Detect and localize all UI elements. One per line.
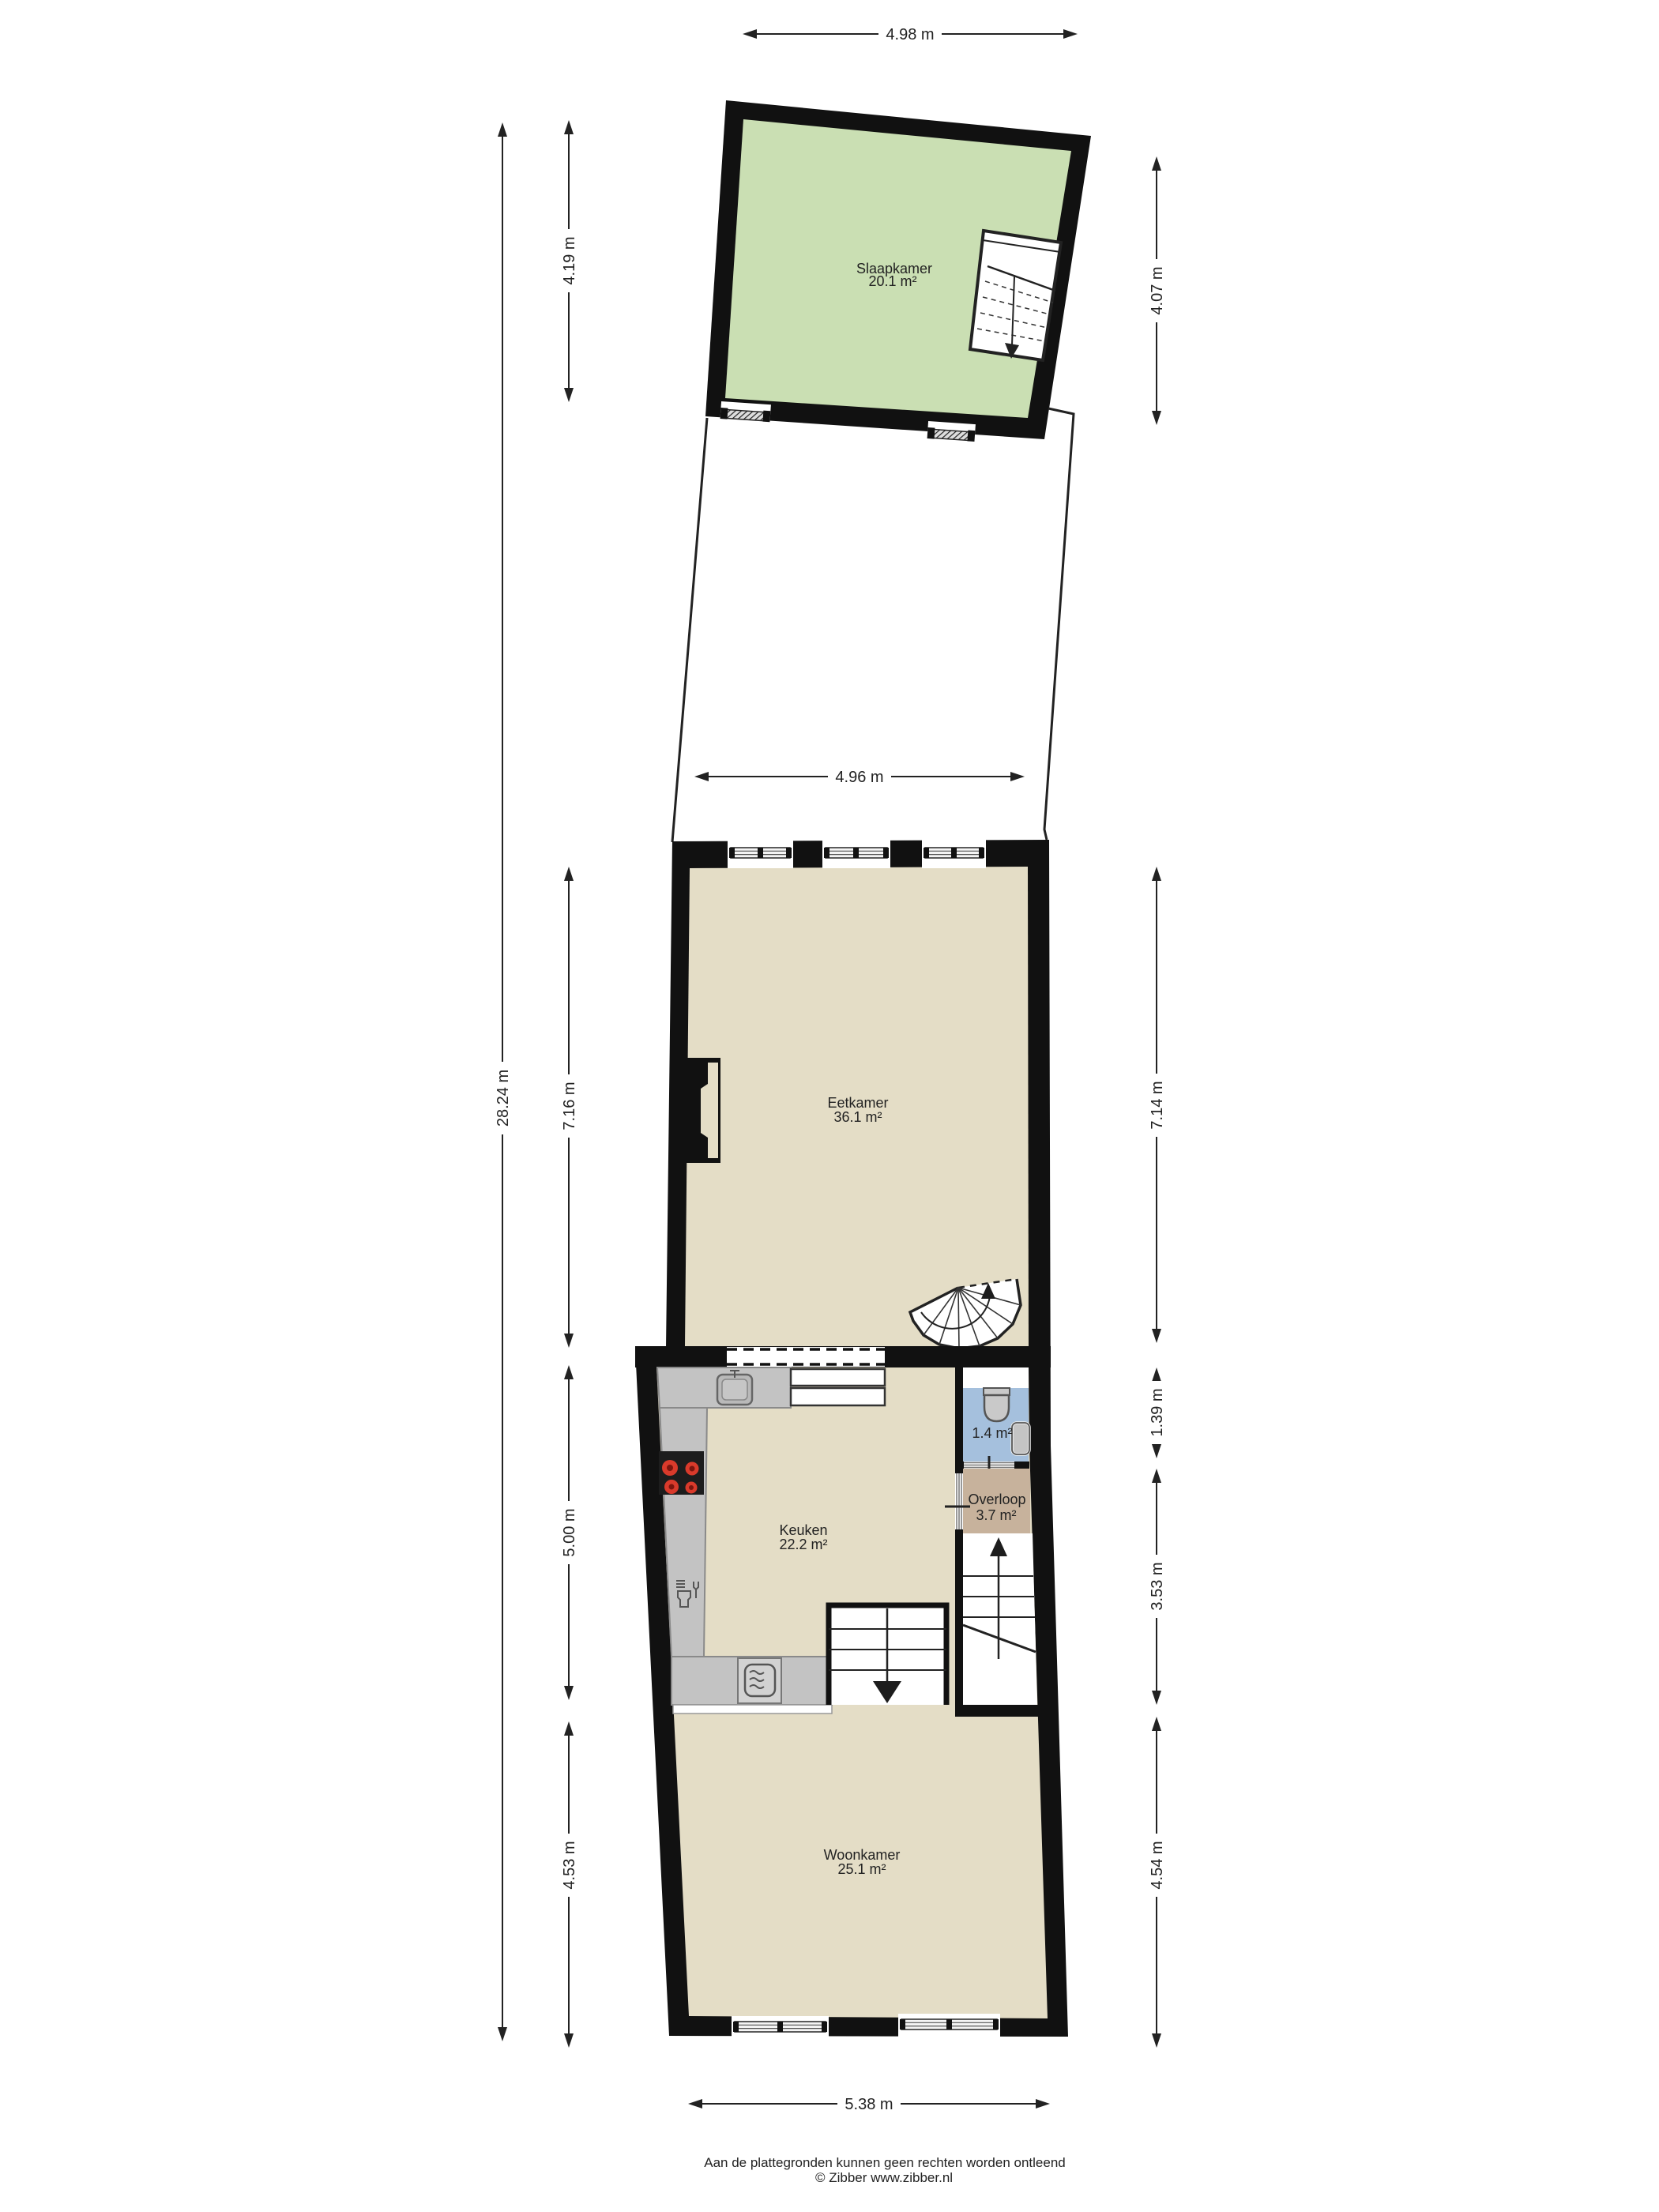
- svg-text:4.19 m: 4.19 m: [561, 236, 578, 284]
- svg-text:Woonkamer: Woonkamer: [824, 1847, 901, 1863]
- svg-text:1.4 m²: 1.4 m²: [972, 1425, 1012, 1441]
- svg-text:© Zibber www.zibber.nl: © Zibber www.zibber.nl: [815, 2170, 953, 2185]
- svg-text:4.07 m: 4.07 m: [1149, 266, 1166, 314]
- svg-text:7.14 m: 7.14 m: [1149, 1081, 1166, 1129]
- svg-text:20.1 m²: 20.1 m²: [868, 273, 916, 289]
- svg-text:5.00 m: 5.00 m: [561, 1508, 578, 1556]
- svg-text:Eetkamer: Eetkamer: [827, 1095, 888, 1111]
- svg-text:4.53 m: 4.53 m: [561, 1841, 578, 1889]
- svg-text:3.53 m: 3.53 m: [1149, 1562, 1166, 1610]
- svg-text:Aan de plattegronden kunnen ge: Aan de plattegronden kunnen geen rechten…: [704, 2155, 1065, 2170]
- svg-text:5.38 m: 5.38 m: [845, 2096, 893, 2113]
- svg-text:36.1 m²: 36.1 m²: [833, 1109, 882, 1125]
- svg-text:1.39 m: 1.39 m: [1149, 1388, 1166, 1436]
- svg-text:Overloop: Overloop: [968, 1492, 1025, 1507]
- svg-text:28.24 m: 28.24 m: [495, 1070, 512, 1127]
- svg-text:4.54 m: 4.54 m: [1149, 1841, 1166, 1889]
- svg-text:3.7 m²: 3.7 m²: [976, 1507, 1016, 1523]
- svg-text:4.98 m: 4.98 m: [886, 26, 934, 43]
- svg-text:4.96 m: 4.96 m: [835, 769, 883, 786]
- svg-text:22.2 m²: 22.2 m²: [779, 1537, 827, 1552]
- svg-text:Keuken: Keuken: [779, 1522, 827, 1538]
- svg-text:25.1 m²: 25.1 m²: [837, 1861, 886, 1877]
- svg-text:7.16 m: 7.16 m: [561, 1082, 578, 1130]
